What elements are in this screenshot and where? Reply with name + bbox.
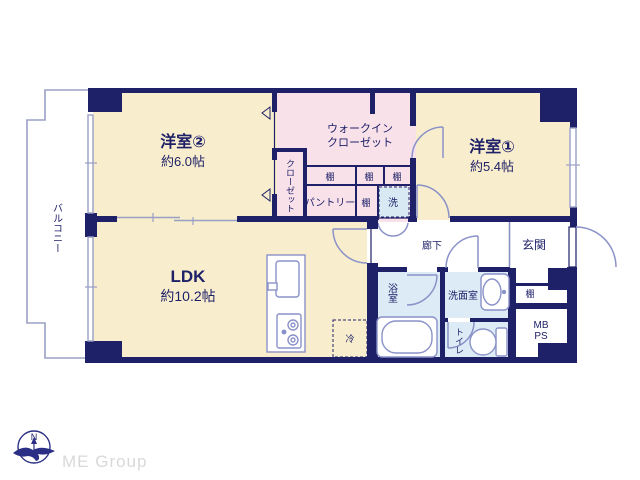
fridge-label: 冷 bbox=[345, 333, 354, 344]
wall-bedroom1-left bbox=[410, 92, 416, 126]
wall-bedroom1-left bbox=[410, 158, 416, 220]
front-door-leaf bbox=[569, 227, 576, 267]
wall-hall-bottom bbox=[478, 267, 510, 272]
washbasin-tap-icon bbox=[502, 290, 506, 294]
wall-mbps-pier bbox=[538, 343, 577, 363]
floor-plan: バルコニー bbox=[0, 0, 640, 480]
bathtub-inner bbox=[382, 321, 432, 353]
wall-corner-tl bbox=[88, 88, 122, 112]
washbasin-bowl bbox=[483, 279, 501, 305]
toilet-tank bbox=[496, 328, 507, 356]
balcony-label: バルコニー bbox=[51, 203, 63, 253]
bedroom2-label: 洋室② bbox=[160, 132, 206, 151]
toilet-bowl bbox=[470, 329, 496, 355]
ldk-size: 約10.2帖 bbox=[160, 288, 215, 304]
logo-text: ME Group bbox=[62, 452, 147, 471]
laundry-label: 洗 bbox=[388, 197, 398, 209]
front-door-arc bbox=[576, 227, 616, 267]
entrance-shelf-label: 棚 bbox=[525, 288, 534, 299]
footer: N ME Group bbox=[13, 431, 147, 471]
stove-knob-icon bbox=[282, 330, 287, 335]
wall-bottom bbox=[88, 357, 577, 363]
hallway-label: 廊下 bbox=[422, 239, 442, 252]
shelf-label: 棚 bbox=[364, 171, 373, 182]
wall-band bbox=[88, 216, 117, 222]
window-ldk bbox=[88, 237, 93, 341]
wall-band bbox=[237, 216, 277, 222]
bedroom1-label: 洋室① bbox=[469, 137, 515, 156]
floor-plan-page: バルコニー bbox=[0, 0, 640, 480]
bedroom1-size: 約5.4帖 bbox=[470, 159, 514, 174]
bathroom-label: 浴室 bbox=[386, 283, 398, 303]
wall-band bbox=[277, 216, 378, 222]
wall-corner-bl bbox=[85, 341, 122, 363]
stove-burner-icon bbox=[291, 323, 295, 327]
wic-label-1: ウォークイン bbox=[327, 122, 393, 135]
wall-closet-front bbox=[272, 92, 277, 112]
wall-bath-wash bbox=[440, 272, 445, 363]
mb-label: MB bbox=[534, 320, 549, 331]
washroom-label: 洗面室 bbox=[448, 289, 478, 302]
wall-entrance-pier bbox=[548, 268, 577, 290]
window-bedroom2 bbox=[88, 115, 93, 213]
window-bedroom1 bbox=[570, 128, 576, 207]
wall-band bbox=[450, 216, 577, 222]
wall-wash-toilet bbox=[445, 318, 448, 322]
ps-label: PS bbox=[534, 331, 548, 342]
closet-label: クローゼット bbox=[285, 159, 295, 213]
shelf-label: 棚 bbox=[325, 171, 334, 182]
ldk-floor bbox=[93, 217, 367, 357]
shelf-label: 棚 bbox=[392, 171, 401, 182]
stove-burner-icon bbox=[291, 338, 295, 342]
wall-right-upper bbox=[570, 122, 577, 128]
toilet-label: トイレ bbox=[454, 328, 464, 355]
ldk-label: LDK bbox=[171, 267, 207, 286]
kitchen-faucet-icon bbox=[268, 283, 277, 290]
wall-band bbox=[408, 216, 417, 222]
shelf-label: 棚 bbox=[361, 197, 370, 208]
wall-shelf-bottom bbox=[516, 303, 577, 309]
wall-hall-bottom bbox=[378, 267, 407, 272]
bedroom2-size: 約6.0帖 bbox=[161, 154, 205, 169]
wall-ldk-right bbox=[367, 222, 378, 229]
kitchen-sink bbox=[276, 261, 299, 297]
balcony: バルコニー bbox=[27, 90, 88, 358]
wall-corner-tr bbox=[540, 88, 577, 122]
wall-closet-top bbox=[272, 148, 307, 152]
pantry-label: パントリー bbox=[305, 197, 356, 209]
wall-wic-stub bbox=[370, 92, 375, 114]
wall-top bbox=[88, 88, 577, 93]
wic-label-2: クローゼット bbox=[327, 136, 393, 149]
wall-shelf-top bbox=[516, 283, 548, 286]
entrance-label: 玄関 bbox=[522, 237, 546, 252]
wall-wash-toilet bbox=[470, 318, 510, 322]
